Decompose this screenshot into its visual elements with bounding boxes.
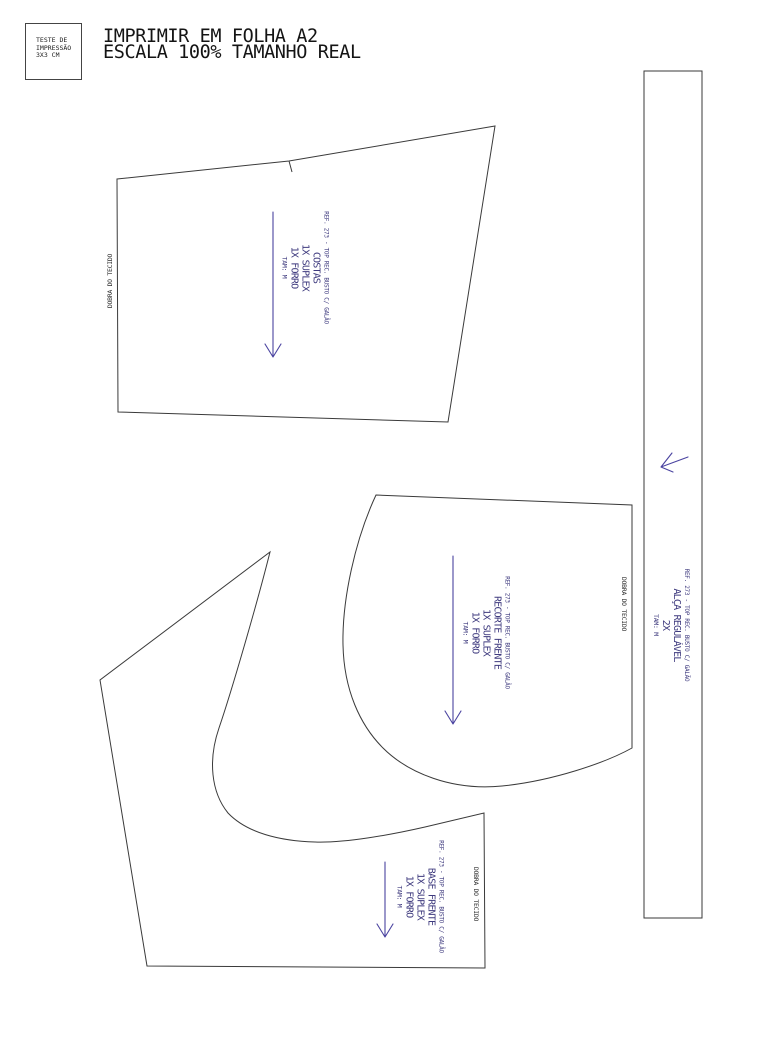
costas-fold-label: DOBRA DO TECIDO [105,211,115,351]
recorte-frente-grainline-arrow [445,556,461,724]
base-size-text: TAM: M [395,777,404,1017]
sewing-pattern-sheet: TESTE DE IMPRESSÃO 3X3 CM IMPRIMIR EM FO… [0,0,774,1058]
base-name-text: BASE FRENTE [426,777,437,1017]
alca-ref-text: REF. 273 - TOP REC. BUSTO C/ GALÃO [682,505,691,745]
costas-name-text: COSTAS [311,148,322,388]
print-test-box: TESTE DE IMPRESSÃO 3X3 CM [25,23,82,80]
recorte-qty2-text: 1X FORRO [470,513,481,753]
alca-piece-label: REF. 273 - TOP REC. BUSTO C/ GALÃO ALÇA … [651,505,691,745]
costas-qty1-text: 1X SUPLEX [300,148,311,388]
alca-grainline-arrow [661,453,688,472]
print-instructions-line2: ESCALA 100% TAMANHO REAL [103,45,361,61]
alca-qty1-text: 2X [660,505,671,745]
recorte-name-text: RECORTE FRENTE [492,513,503,753]
alca-strip-outline [644,71,702,918]
base-qty1-text: 1X SUPLEX [415,777,426,1017]
costas-qty2-text: 1X FORRO [289,148,300,388]
base-ref-text: REF. 273 - TOP REC. BUSTO C/ GALÃO [437,777,446,1017]
alca-size-text: TAM: M [651,505,660,745]
base-qty2-text: 1X FORRO [404,777,415,1017]
recorte-frente-fold-label: DOBRA DO TECIDO [619,534,629,674]
recorte-ref-text: REF. 273 - TOP REC. BUSTO C/ GALÃO [503,513,512,753]
base-frente-fold-label: DOBRA DO TECIDO [471,824,481,964]
alca-name-text: ALÇA REGULÁVEL [671,505,682,745]
recorte-frente-piece-label: REF. 273 - TOP REC. BUSTO C/ GALÃO RECOR… [461,513,512,753]
costas-piece-label: REF. 273 - TOP REC. BUSTO C/ GALÃO COSTA… [280,148,331,388]
recorte-size-text: TAM: M [461,513,470,753]
print-instructions: IMPRIMIR EM FOLHA A2 ESCALA 100% TAMANHO… [103,29,361,61]
test-box-line: 3X3 CM [36,52,81,60]
base-frente-grainline-arrow [377,862,393,937]
base-frente-piece-label: REF. 273 - TOP REC. BUSTO C/ GALÃO BASE … [395,777,446,1017]
recorte-qty1-text: 1X SUPLEX [481,513,492,753]
costas-size-text: TAM: M [280,148,289,388]
costas-ref-text: REF. 273 - TOP REC. BUSTO C/ GALÃO [322,148,331,388]
